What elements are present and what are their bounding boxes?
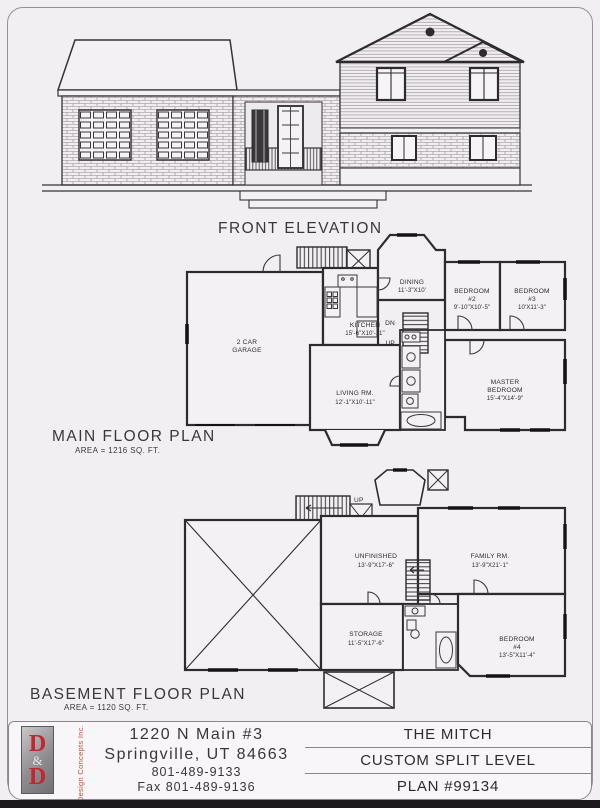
porch-step bbox=[249, 200, 377, 208]
dining-dims: 11'-3"X10' bbox=[398, 287, 426, 294]
bedroom3-label: BEDROOM bbox=[514, 288, 549, 295]
garage-label: 2 CAR bbox=[237, 339, 257, 346]
scan-edge-bar bbox=[0, 800, 600, 808]
basement-area: AREA = 1120 SQ. FT. bbox=[64, 703, 149, 712]
address-line-2: Springville, UT 84663 bbox=[89, 745, 304, 765]
garage-door-right bbox=[157, 110, 209, 160]
front-elevation-drawing bbox=[40, 10, 545, 222]
main-floor-area: AREA = 1216 SQ. FT. bbox=[75, 446, 160, 455]
storage-dims: 11'-5"X17'-6" bbox=[348, 640, 384, 647]
unfinished-room bbox=[321, 516, 418, 604]
kitchen-label: KITCHEN bbox=[350, 322, 380, 329]
unfinished-label: UNFINISHED bbox=[355, 553, 397, 560]
gable-vent-right bbox=[479, 49, 487, 57]
garage-door-left bbox=[79, 110, 131, 160]
main-floor-plan-drawing: 2 CAR GARAGE KITCHEN 15'-6"X10'-11" DINI… bbox=[168, 226, 572, 464]
foundation bbox=[340, 168, 520, 185]
porch-window bbox=[252, 110, 268, 162]
living-bay-window bbox=[325, 430, 385, 445]
logo-letter-d-top: D bbox=[29, 732, 46, 756]
company-logo: D & D Design Concepts Inc. bbox=[21, 726, 83, 794]
living-dims: 12'-1"X10'-11" bbox=[335, 399, 374, 406]
kitchen-counter-right bbox=[357, 287, 377, 317]
bedroom4-num: #4 bbox=[513, 644, 521, 651]
basement-floor-plan-drawing: UNFINISHED 13'-9"X17'-6" FAMILY RM. 13'-… bbox=[168, 464, 572, 712]
toilet-bowl bbox=[411, 630, 419, 638]
logo-company-name: Design Concepts Inc. bbox=[76, 725, 85, 802]
unfinished-dims: 13'-9"X17'-6" bbox=[358, 562, 394, 569]
garage-label2: GARAGE bbox=[232, 347, 262, 354]
porch-platform bbox=[240, 191, 386, 200]
company-address: 1220 N Main #3 Springville, UT 84663 801… bbox=[89, 725, 304, 795]
master-dims: 15'-4"X14'-9" bbox=[487, 395, 523, 402]
basement-split-stairs bbox=[406, 560, 430, 600]
master-label2: BEDROOM bbox=[487, 387, 522, 394]
phone-number: 801-489-9133 bbox=[89, 765, 304, 780]
dining-label: DINING bbox=[400, 279, 424, 286]
stairs-up-label: UP bbox=[385, 340, 395, 347]
logo-letter-d-bottom: D bbox=[29, 765, 46, 789]
basement-up-label: UP bbox=[354, 497, 364, 504]
plan-name: THE MITCH bbox=[305, 722, 591, 748]
storage-label: STORAGE bbox=[349, 631, 383, 638]
family-label: FAMILY RM. bbox=[471, 553, 510, 560]
fascia-band bbox=[58, 90, 340, 96]
bedroom2-num: #2 bbox=[468, 296, 476, 303]
garage-entry-door bbox=[263, 255, 280, 272]
bay-window-top bbox=[375, 470, 425, 505]
trim-band bbox=[340, 128, 520, 133]
title-block: D & D Design Concepts Inc. 1220 N Main #… bbox=[8, 721, 592, 800]
stairs-dn-label: DN bbox=[385, 320, 395, 327]
bedroom2-dims: 9'-10"X10'-5" bbox=[454, 304, 490, 311]
garage-roof bbox=[58, 40, 237, 90]
toilet-tank bbox=[407, 620, 416, 630]
living-room bbox=[310, 345, 400, 430]
bedroom4-room bbox=[458, 594, 565, 676]
master-label: MASTER bbox=[491, 379, 520, 386]
bath-door bbox=[430, 594, 440, 604]
bedroom2-label: BEDROOM bbox=[454, 288, 489, 295]
plan-info-rows: THE MITCH CUSTOM SPLIT LEVEL PLAN #99134 bbox=[305, 722, 591, 799]
fax-number: Fax 801-489-9136 bbox=[89, 780, 304, 795]
gable-vent-left bbox=[426, 28, 435, 37]
entry-steps bbox=[297, 247, 347, 268]
logo-bar: D & D bbox=[21, 726, 54, 794]
address-line-1: 1220 N Main #3 bbox=[89, 725, 304, 745]
plan-number: PLAN #99134 bbox=[305, 774, 591, 799]
blueprint-page: FRONT ELEVATION bbox=[0, 0, 600, 808]
basement-caption: BASEMENT FLOOR PLAN bbox=[30, 686, 246, 704]
bedroom4-label: BEDROOM bbox=[499, 636, 534, 643]
main-floor-caption: MAIN FLOOR PLAN bbox=[52, 428, 216, 446]
kitchen-dims: 15'-6"X10'-11" bbox=[345, 330, 384, 337]
bedroom3-dims: 10'X11'-3" bbox=[518, 304, 546, 311]
family-room bbox=[418, 508, 565, 594]
ground-line bbox=[42, 185, 532, 191]
bedroom3-num: #3 bbox=[528, 296, 536, 303]
bedroom4-dims: 13'-5"X11'-4" bbox=[499, 652, 535, 659]
family-dims: 13'-9"X21'-1" bbox=[472, 562, 508, 569]
stove bbox=[338, 275, 357, 287]
plan-style: CUSTOM SPLIT LEVEL bbox=[305, 748, 591, 774]
living-label: LIVING RM. bbox=[336, 390, 374, 397]
